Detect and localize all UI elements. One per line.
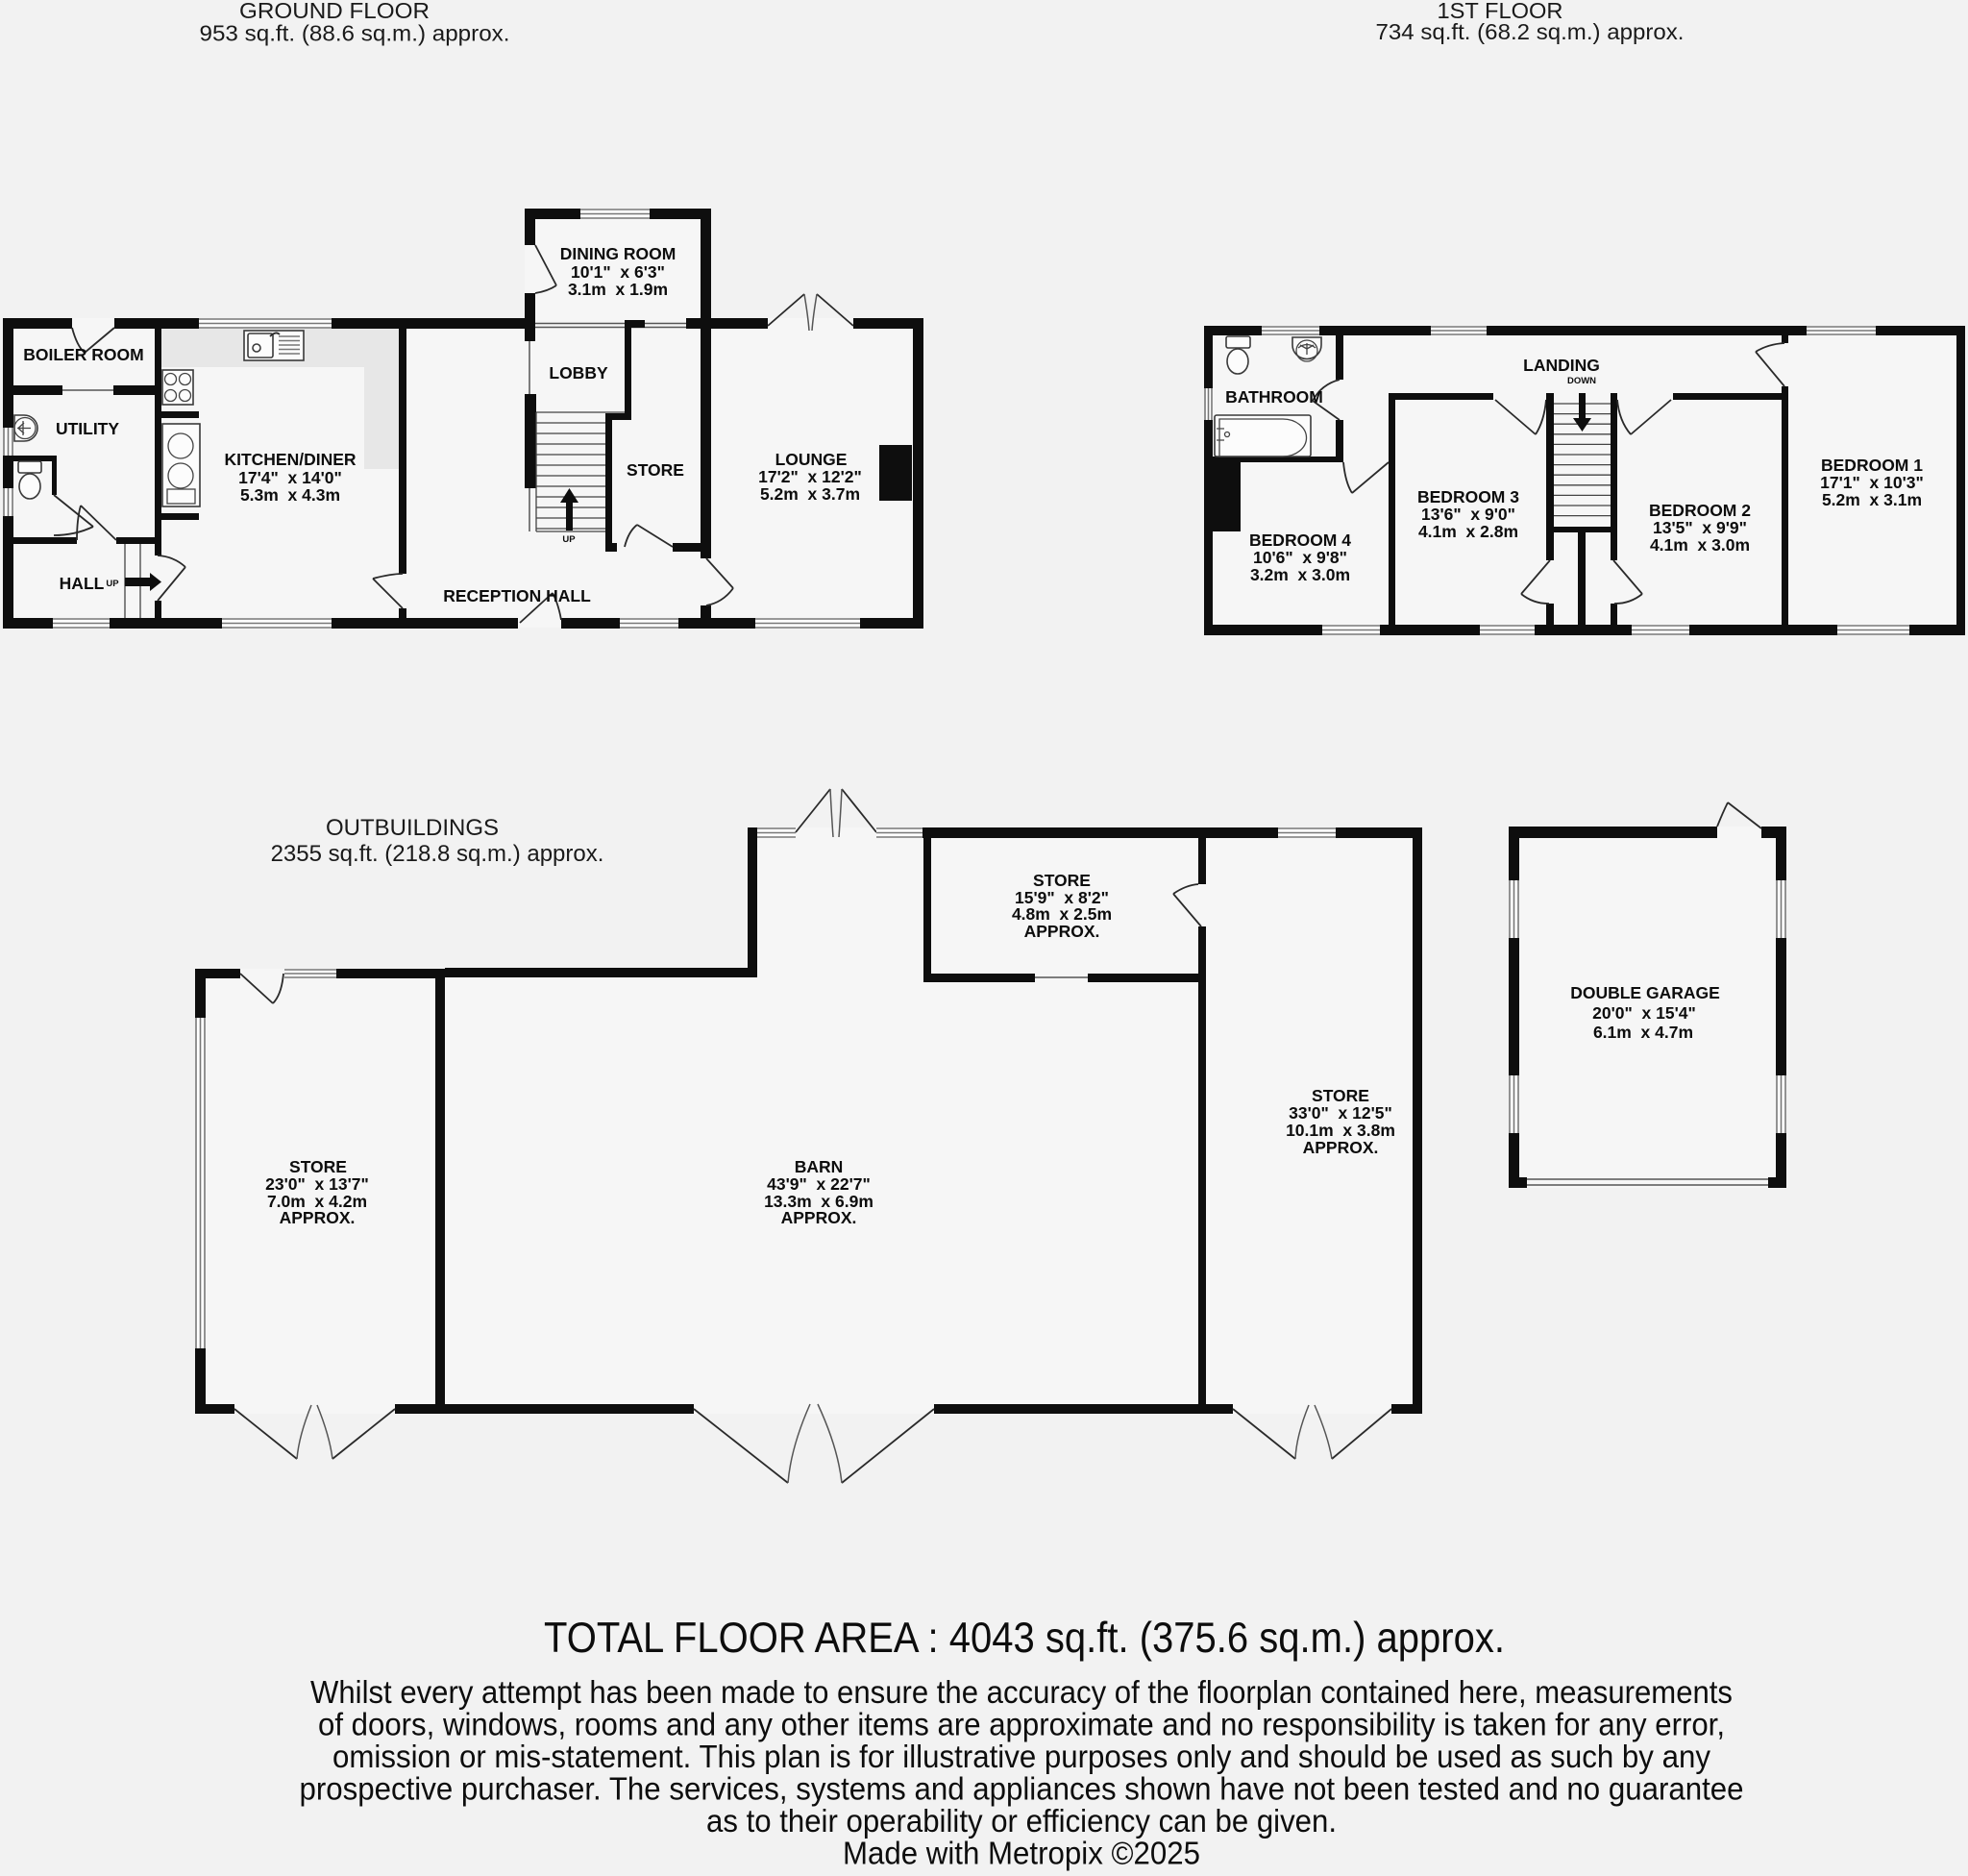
svg-text:953 sq.ft. (88.6 sq.m.) approx: 953 sq.ft. (88.6 sq.m.) approx. (200, 21, 510, 46)
svg-text:BEDROOM 3: BEDROOM 3 (1417, 487, 1519, 506)
svg-text:BEDROOM 1: BEDROOM 1 (1821, 456, 1923, 475)
svg-text:10'1" x 6'3": 10'1" x 6'3" (571, 262, 665, 282)
svg-text:23'0" x 13'7": 23'0" x 13'7" (265, 1174, 369, 1194)
svg-text:BEDROOM 2: BEDROOM 2 (1649, 501, 1751, 520)
svg-text:APPROX.: APPROX. (781, 1208, 857, 1227)
svg-text:10.1m x 3.8m: 10.1m x 3.8m (1286, 1121, 1395, 1140)
svg-text:STORE: STORE (1312, 1086, 1369, 1105)
svg-text:STORE: STORE (1033, 871, 1091, 890)
svg-text:APPROX.: APPROX. (1024, 922, 1100, 941)
svg-text:20'0" x 15'4": 20'0" x 15'4" (1592, 1003, 1696, 1023)
svg-text:10'6" x 9'8": 10'6" x 9'8" (1253, 548, 1347, 567)
svg-text:4.1m x 2.8m: 4.1m x 2.8m (1418, 522, 1518, 541)
svg-text:GROUND FLOOR: GROUND FLOOR (239, 0, 430, 23)
svg-text:UP: UP (106, 579, 119, 589)
svg-text:5.3m x 4.3m: 5.3m x 4.3m (240, 485, 340, 505)
svg-text:BARN: BARN (795, 1157, 844, 1176)
svg-text:43'9" x 22'7": 43'9" x 22'7" (767, 1174, 871, 1194)
svg-text:KITCHEN/DINER: KITCHEN/DINER (224, 450, 356, 469)
svg-text:BATHROOM: BATHROOM (1225, 387, 1323, 407)
svg-text:of doors, windows, rooms and a: of doors, windows, rooms and any other i… (318, 1707, 1725, 1742)
svg-text:LOBBY: LOBBY (549, 363, 608, 383)
svg-text:STORE: STORE (627, 460, 684, 480)
svg-text:13'5" x 9'9": 13'5" x 9'9" (1653, 518, 1747, 537)
svg-text:DOWN: DOWN (1567, 376, 1596, 386)
svg-text:TOTAL FLOOR AREA : 4043 sq.ft.: TOTAL FLOOR AREA : 4043 sq.ft. (375.6 sq… (544, 1615, 1505, 1662)
svg-text:5.2m x 3.1m: 5.2m x 3.1m (1822, 490, 1922, 509)
svg-text:13'6" x 9'0": 13'6" x 9'0" (1421, 505, 1515, 524)
svg-text:Whilst every attempt has been: Whilst every attempt has been made to en… (310, 1674, 1733, 1710)
svg-text:4.1m x 3.0m: 4.1m x 3.0m (1650, 535, 1750, 555)
svg-text:4.8m x 2.5m: 4.8m x 2.5m (1012, 904, 1112, 924)
svg-text:BOILER ROOM: BOILER ROOM (23, 345, 143, 364)
svg-text:734 sq.ft. (68.2 sq.m.) approx: 734 sq.ft. (68.2 sq.m.) approx. (1376, 19, 1685, 44)
svg-text:2355 sq.ft. (218.8 sq.m.) appr: 2355 sq.ft. (218.8 sq.m.) approx. (271, 841, 604, 867)
svg-text:OUTBUILDINGS: OUTBUILDINGS (326, 815, 499, 841)
svg-text:UP: UP (562, 534, 576, 545)
svg-text:STORE: STORE (289, 1157, 347, 1176)
svg-text:17'2" x 12'2": 17'2" x 12'2" (758, 467, 862, 486)
svg-text:6.1m x 4.7m: 6.1m x 4.7m (1593, 1023, 1693, 1042)
svg-text:as to their operability or eff: as to their operability or efficiency ca… (706, 1803, 1337, 1839)
svg-text:omission or mis-statement. Thi: omission or mis-statement. This plan is … (332, 1739, 1710, 1774)
svg-text:17'4" x 14'0": 17'4" x 14'0" (238, 468, 342, 487)
svg-text:prospective purchaser. The ser: prospective purchaser. The services, sys… (300, 1771, 1744, 1807)
svg-text:3.1m x 1.9m: 3.1m x 1.9m (568, 280, 668, 299)
svg-text:3.2m x 3.0m: 3.2m x 3.0m (1250, 565, 1350, 584)
svg-text:Made with Metropix ©2025: Made with Metropix ©2025 (843, 1836, 1200, 1871)
svg-text:APPROX.: APPROX. (280, 1208, 356, 1227)
svg-text:DOUBLE GARAGE: DOUBLE GARAGE (1570, 983, 1720, 1002)
svg-text:DINING ROOM: DINING ROOM (560, 244, 676, 263)
svg-text:LANDING: LANDING (1523, 356, 1600, 375)
svg-text:UTILITY: UTILITY (56, 419, 119, 438)
svg-text:APPROX.: APPROX. (1303, 1138, 1379, 1157)
svg-text:BEDROOM 4: BEDROOM 4 (1249, 531, 1351, 550)
svg-text:HALL: HALL (60, 574, 105, 593)
svg-text:RECEPTION HALL: RECEPTION HALL (443, 586, 591, 605)
svg-text:5.2m x 3.7m: 5.2m x 3.7m (760, 484, 860, 504)
svg-text:LOUNGE: LOUNGE (775, 450, 848, 469)
svg-text:17'1" x 10'3": 17'1" x 10'3" (1820, 473, 1924, 492)
svg-text:33'0" x 12'5": 33'0" x 12'5" (1289, 1103, 1392, 1123)
